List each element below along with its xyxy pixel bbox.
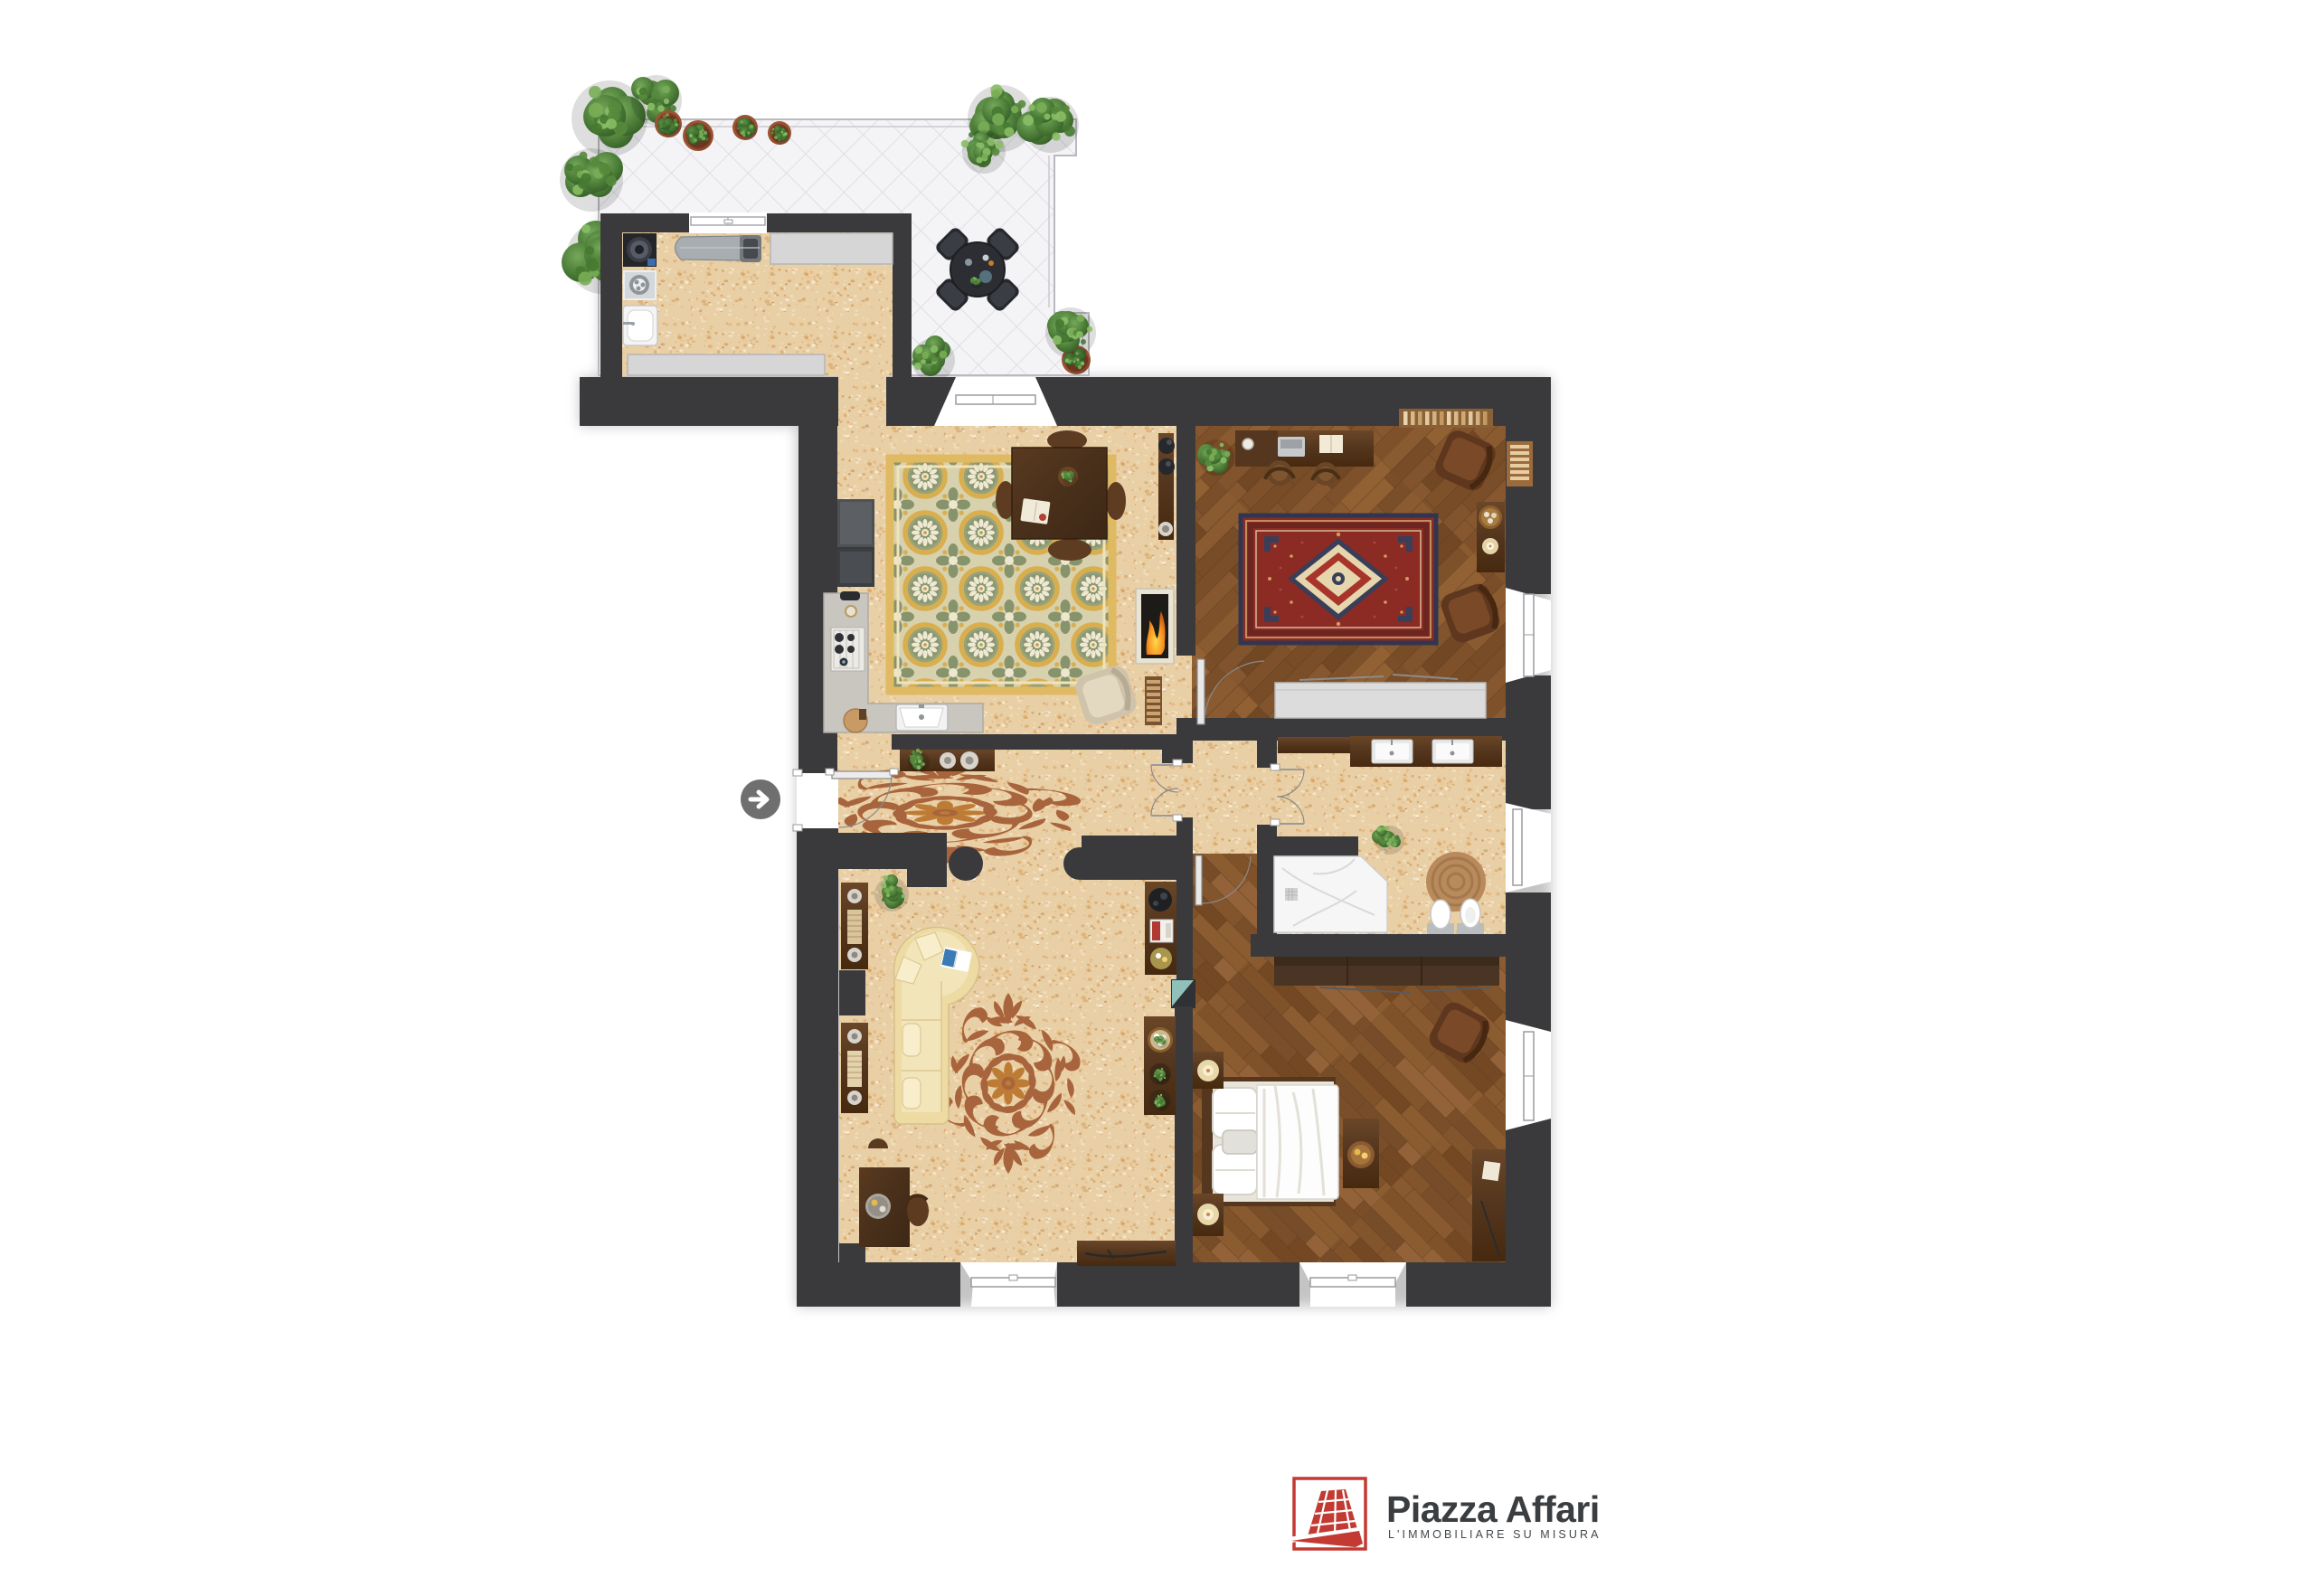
svg-text:L'IMMOBILIARE SU MISURA: L'IMMOBILIARE SU MISURA xyxy=(1388,1528,1602,1541)
svg-text:Piazza Affari: Piazza Affari xyxy=(1386,1488,1600,1530)
